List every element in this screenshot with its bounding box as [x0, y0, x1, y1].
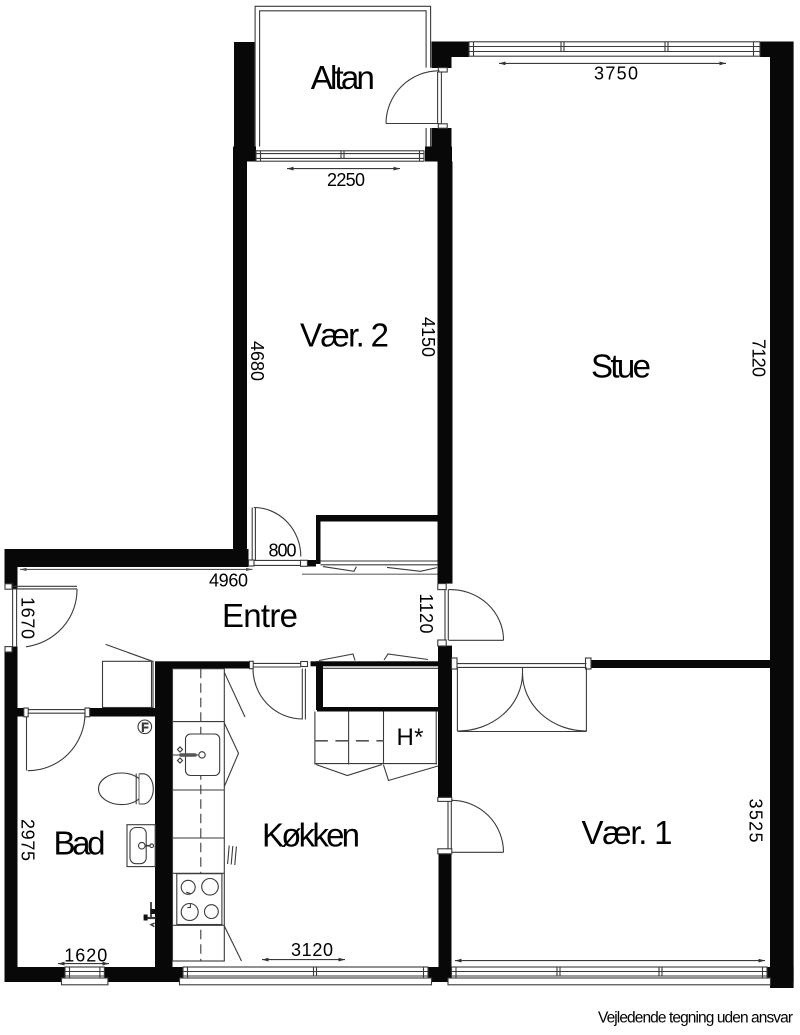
- svg-text:2975: 2975: [18, 819, 38, 861]
- svg-text:4680: 4680: [247, 341, 267, 381]
- svg-text:Vær. 2: Vær. 2: [300, 316, 389, 353]
- svg-text:4150: 4150: [418, 317, 438, 357]
- svg-text:7120: 7120: [748, 339, 768, 377]
- svg-text:3525: 3525: [746, 799, 766, 843]
- svg-text:1670: 1670: [18, 597, 38, 639]
- svg-text:3120: 3120: [291, 940, 333, 960]
- svg-text:Altan: Altan: [311, 59, 375, 96]
- svg-text:Køkken: Køkken: [262, 817, 360, 854]
- svg-text:F: F: [141, 722, 148, 734]
- svg-text:Stue: Stue: [591, 347, 651, 384]
- svg-text:800: 800: [269, 541, 297, 561]
- svg-text:H*: H*: [397, 724, 424, 751]
- svg-text:Bad: Bad: [54, 825, 106, 862]
- svg-text:4960: 4960: [209, 571, 248, 591]
- svg-text:Vejledende tegning uden ansvar: Vejledende tegning uden ansvar: [598, 1010, 793, 1027]
- svg-text:2250: 2250: [327, 170, 365, 190]
- svg-text:Entre: Entre: [222, 597, 298, 634]
- svg-text:1620: 1620: [64, 945, 107, 965]
- svg-text:Vær. 1: Vær. 1: [582, 814, 673, 851]
- svg-text:3750: 3750: [594, 64, 638, 84]
- svg-text:1120: 1120: [416, 594, 436, 634]
